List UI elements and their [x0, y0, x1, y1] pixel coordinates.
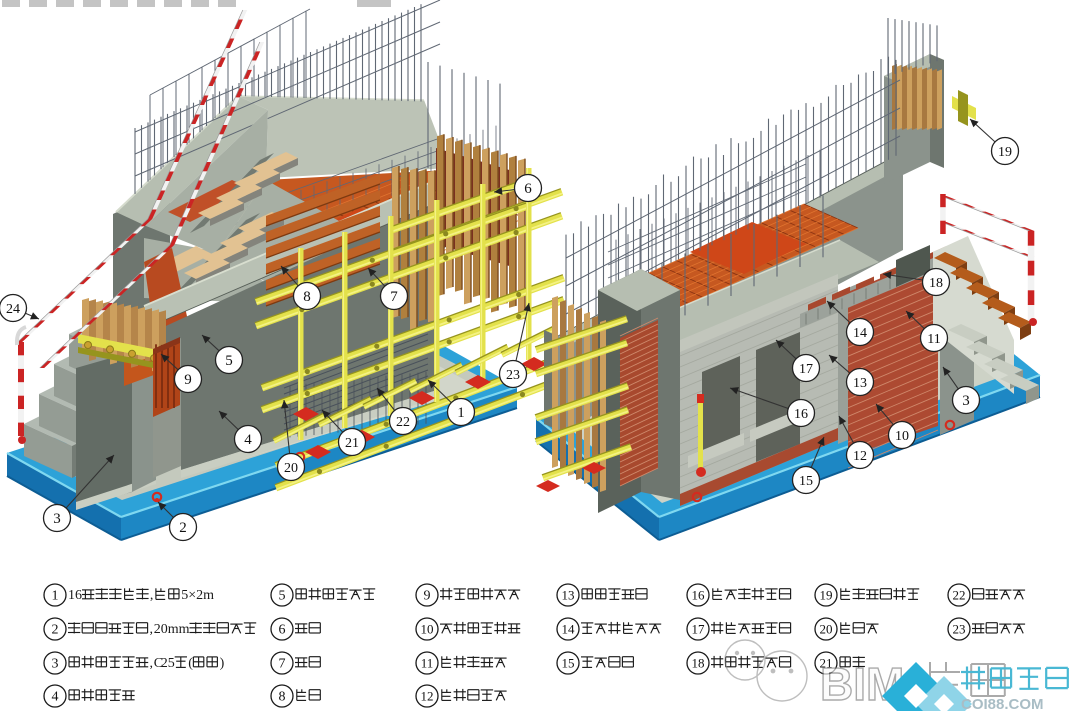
svg-text:3: 3 [962, 393, 970, 409]
svg-text:11: 11 [927, 332, 940, 347]
svg-text:15: 15 [562, 656, 575, 671]
svg-text:3: 3 [52, 657, 59, 672]
svg-text:20: 20 [284, 461, 298, 476]
svg-text:5: 5 [279, 589, 286, 604]
svg-text:16: 16 [692, 588, 706, 603]
svg-text:14: 14 [562, 622, 576, 637]
svg-text:2: 2 [52, 623, 59, 638]
svg-text:8: 8 [279, 690, 286, 705]
svg-text:23: 23 [506, 368, 520, 383]
svg-text:10: 10 [421, 622, 434, 637]
svg-text:4: 4 [52, 690, 59, 705]
svg-text:17: 17 [692, 622, 706, 637]
svg-text:18: 18 [692, 656, 705, 671]
svg-text:19: 19 [998, 145, 1012, 160]
svg-text:5: 5 [225, 353, 233, 369]
svg-text:3: 3 [53, 511, 61, 527]
svg-text:COI88.COM: COI88.COM [961, 696, 1044, 711]
svg-text:13: 13 [562, 588, 575, 603]
svg-text:,: , [150, 588, 154, 603]
svg-text:m: m [203, 588, 214, 603]
svg-text:14: 14 [853, 326, 867, 341]
svg-text:2: 2 [179, 520, 187, 536]
svg-text:8: 8 [303, 289, 311, 305]
svg-text:5: 5 [181, 588, 188, 603]
svg-text:7: 7 [390, 289, 398, 305]
svg-text:12: 12 [421, 689, 434, 704]
svg-text:9: 9 [424, 589, 431, 604]
svg-text:m: m [179, 622, 190, 637]
svg-text:4: 4 [244, 432, 252, 448]
svg-text:23: 23 [953, 622, 966, 637]
svg-text:6: 6 [75, 588, 82, 603]
svg-text:22: 22 [953, 588, 966, 603]
svg-text:22: 22 [396, 415, 410, 430]
svg-text:×: × [188, 588, 196, 603]
svg-text:12: 12 [853, 449, 867, 464]
svg-text:13: 13 [853, 376, 867, 391]
svg-text:5: 5 [168, 656, 175, 671]
svg-text:15: 15 [799, 474, 813, 489]
svg-text:18: 18 [929, 276, 943, 291]
svg-text:0: 0 [161, 622, 168, 637]
svg-text:1: 1 [52, 589, 59, 604]
svg-text:1: 1 [68, 588, 75, 603]
svg-text:16: 16 [794, 407, 808, 422]
svg-text:24: 24 [6, 302, 20, 317]
svg-text:,: , [150, 622, 154, 637]
svg-text:m: m [168, 622, 179, 637]
svg-text:6: 6 [524, 181, 532, 197]
svg-text:19: 19 [820, 588, 833, 603]
svg-text:2: 2 [161, 656, 168, 671]
svg-text:20: 20 [820, 622, 833, 637]
svg-text:21: 21 [345, 436, 359, 451]
svg-text:9: 9 [184, 372, 192, 388]
svg-text:2: 2 [154, 622, 161, 637]
svg-text:,: , [150, 656, 154, 671]
svg-text:6: 6 [279, 623, 286, 638]
svg-text:10: 10 [895, 429, 909, 444]
svg-text:7: 7 [279, 657, 286, 672]
svg-text:): ) [220, 656, 225, 671]
svg-text:17: 17 [799, 362, 813, 377]
svg-text:1: 1 [457, 405, 465, 421]
svg-text:(: ( [188, 656, 193, 671]
svg-text:2: 2 [196, 588, 203, 603]
svg-text:11: 11 [421, 656, 434, 671]
